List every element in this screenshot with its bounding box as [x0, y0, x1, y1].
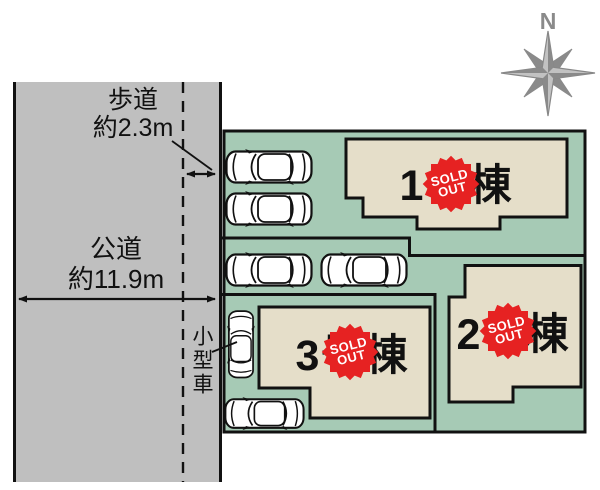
- sold-out-badge: SOLD OUT: [322, 324, 378, 380]
- sold-out-badge-line2: OUT: [437, 180, 468, 199]
- plot-layout-diagram: N 歩道 約2.3m 公道 約11.9m 小型車 1号棟 2号棟 3号棟 SOL…: [0, 0, 600, 490]
- car-icon: [227, 252, 312, 288]
- car-icon: [227, 191, 312, 227]
- north-label: N: [540, 8, 557, 35]
- car-icon: [322, 252, 407, 288]
- road-label-line2: 約11.9m: [68, 264, 164, 294]
- sold-out-badge-line2: OUT: [336, 348, 367, 367]
- road-label-line1: 公道: [68, 234, 164, 264]
- car-icon: [227, 149, 312, 185]
- sidewalk-label-line2: 約2.3m: [93, 114, 174, 142]
- car-icon: [225, 397, 303, 430]
- sidewalk-dimension-label: 歩道 約2.3m: [93, 86, 174, 142]
- compass-rose-icon: [501, 31, 595, 116]
- sold-out-badge: SOLD OUT: [423, 156, 479, 212]
- sold-out-badge-line2: OUT: [494, 327, 525, 346]
- small-car-label: 小型車: [186, 325, 216, 397]
- sidewalk-label-line1: 歩道: [93, 86, 174, 114]
- road-dimension-label: 公道 約11.9m: [68, 234, 164, 294]
- sold-out-badge: SOLD OUT: [480, 303, 536, 359]
